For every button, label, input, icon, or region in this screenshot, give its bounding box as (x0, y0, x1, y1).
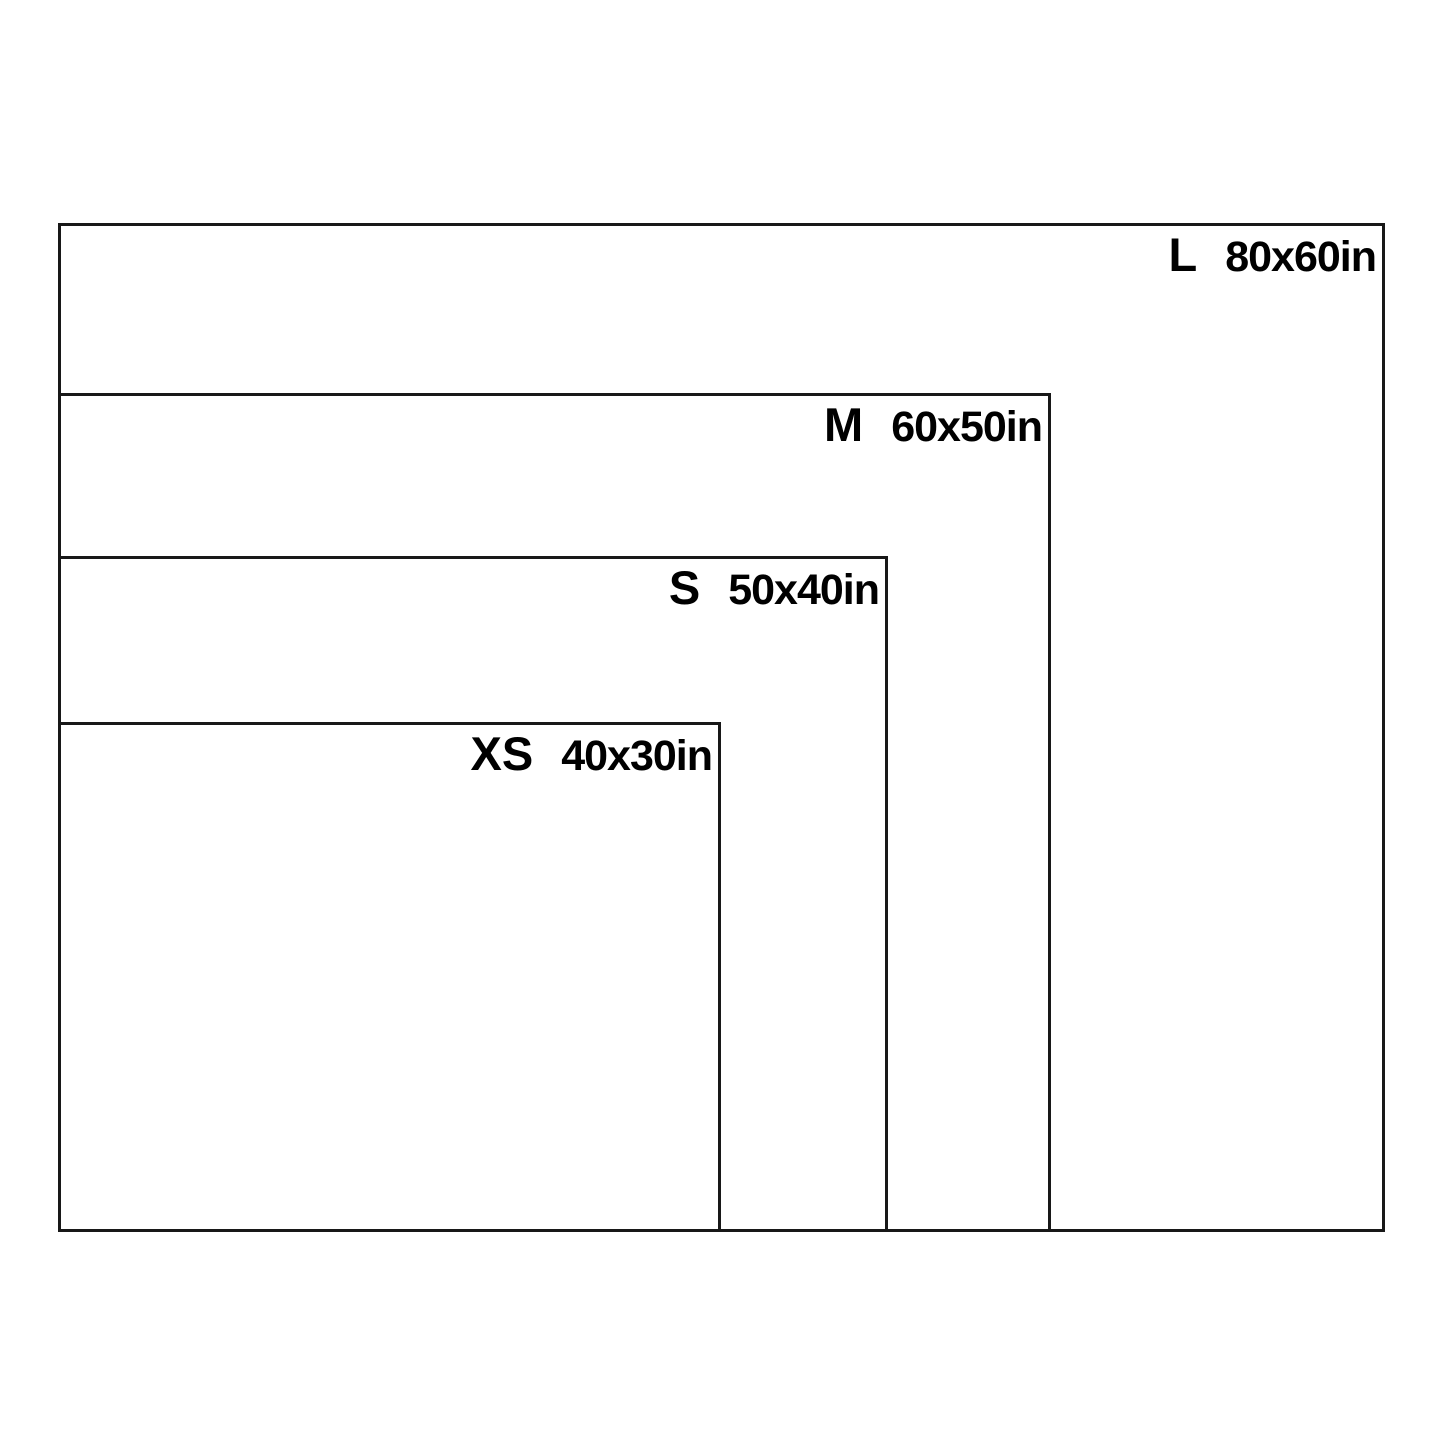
size-dimensions-xs: 40x30in (561, 735, 712, 778)
size-label-s: S 50x40in (669, 564, 879, 612)
size-dimensions-m: 60x50in (891, 406, 1042, 449)
size-letter-xs: XS (471, 730, 534, 777)
size-label-xs: XS 40x30in (471, 730, 713, 778)
size-box-xs: XS 40x30in (58, 722, 721, 1232)
size-letter-s: S (669, 564, 700, 611)
size-dimensions-l: 80x60in (1225, 236, 1376, 279)
size-letter-l: L (1168, 231, 1197, 278)
size-dimensions-s: 50x40in (728, 569, 879, 612)
size-letter-m: M (824, 401, 863, 448)
size-chart-diagram: L 80x60in M 60x50in S 50x40in XS 40x30in (0, 0, 1445, 1445)
size-label-l: L 80x60in (1168, 231, 1376, 279)
size-label-m: M 60x50in (824, 401, 1042, 449)
